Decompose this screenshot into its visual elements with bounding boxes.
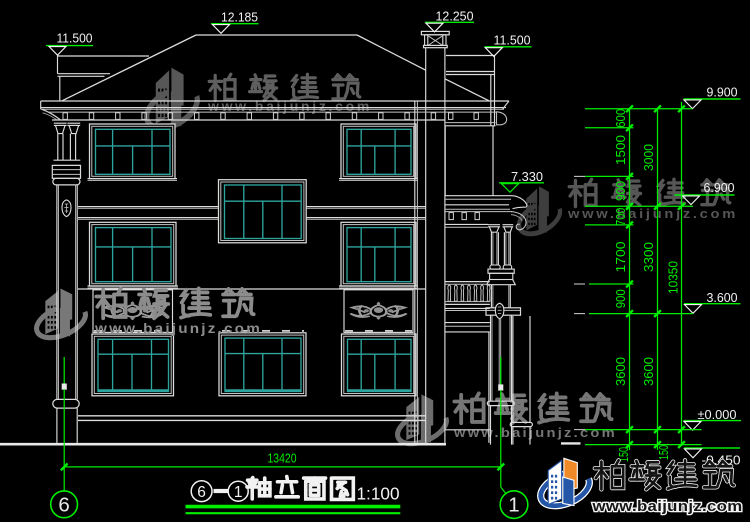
svg-text:6: 6 [58,493,69,516]
svg-text:www.baijunjz.com: www.baijunjz.com [453,425,617,440]
svg-text:1: 1 [234,484,243,501]
svg-text:3000: 3000 [642,144,656,171]
svg-text:700: 700 [614,208,628,226]
svg-text:900: 900 [614,181,628,201]
svg-text:9.900: 9.900 [707,84,738,99]
svg-text:900: 900 [614,289,628,308]
svg-text:1:100: 1:100 [357,484,400,504]
svg-text:7.330: 7.330 [511,169,543,184]
svg-text:3300: 3300 [642,242,656,272]
svg-text:±0.000: ±0.000 [698,407,737,422]
svg-text:13420: 13420 [268,452,297,466]
svg-text:www.baijunjz.com: www.baijunjz.com [94,320,262,336]
svg-text:1700: 1700 [614,241,628,272]
svg-text:12.185: 12.185 [221,10,258,25]
svg-text:1500: 1500 [614,135,628,165]
svg-text:11.500: 11.500 [494,33,531,48]
svg-text:6.900: 6.900 [704,180,735,195]
svg-text:3.600: 3.600 [707,290,738,305]
svg-text:12.250: 12.250 [436,8,474,23]
svg-text:www.baijunjz.com: www.baijunjz.com [567,206,738,221]
svg-text:www.baijunjz.com: www.baijunjz.com [591,498,742,515]
svg-text:600: 600 [614,109,628,128]
svg-text:6: 6 [197,484,206,501]
svg-text:10350: 10350 [667,261,681,294]
svg-text:3600: 3600 [614,357,628,386]
svg-text:3600: 3600 [642,357,656,386]
svg-text:150: 150 [657,445,671,460]
svg-text:11.500: 11.500 [57,30,93,45]
svg-text:1: 1 [508,494,519,517]
